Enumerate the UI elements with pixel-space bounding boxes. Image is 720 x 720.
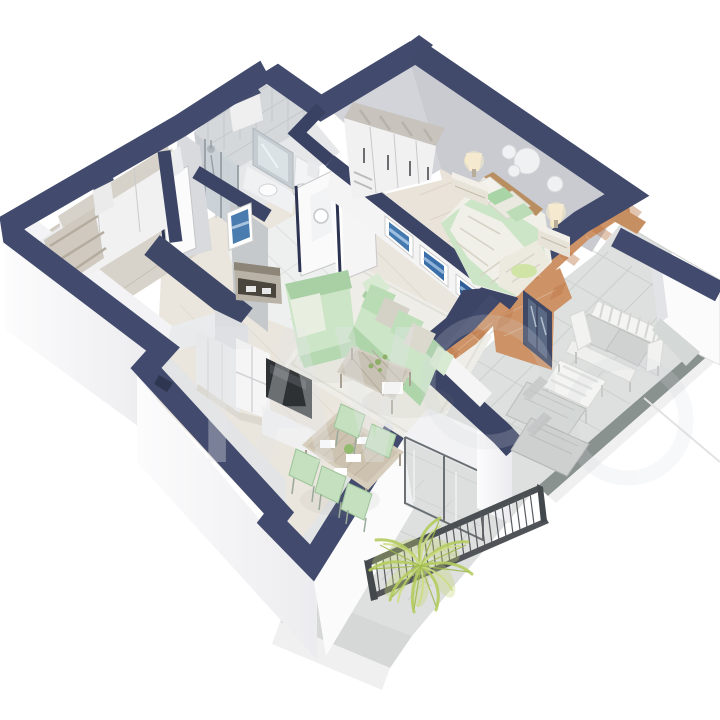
svg-text:TAV: TAV <box>180 284 420 504</box>
